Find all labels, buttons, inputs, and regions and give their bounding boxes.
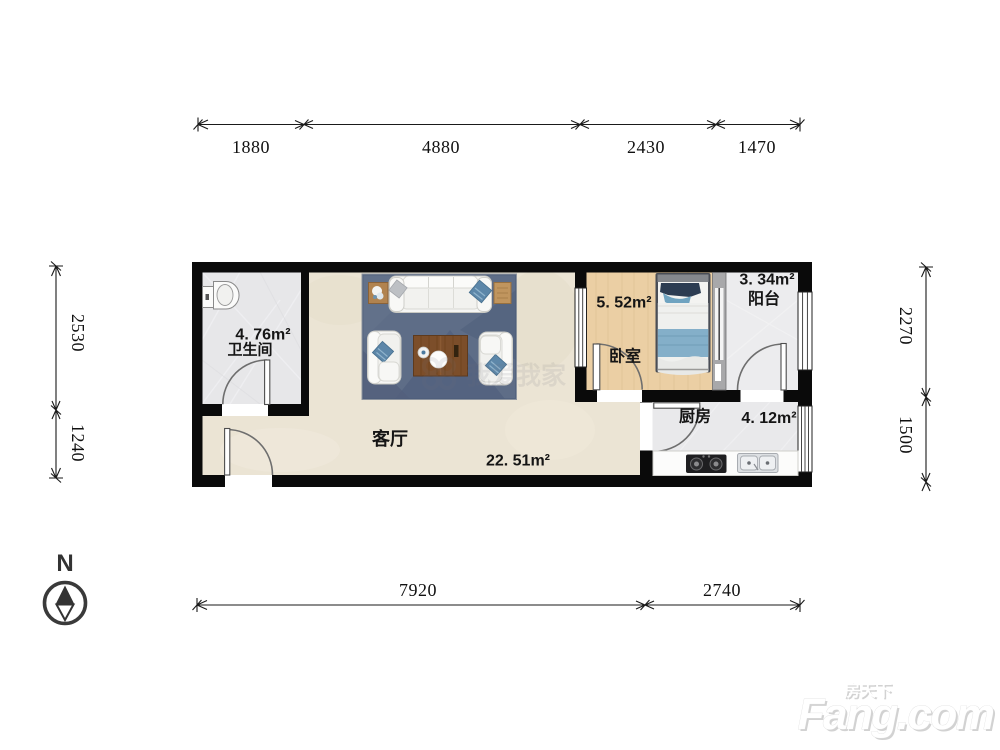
svg-text:2430: 2430: [627, 137, 665, 157]
svg-text:2530: 2530: [68, 314, 88, 352]
svg-text:1470: 1470: [738, 137, 776, 157]
svg-text:我爱我家: 我爱我家: [466, 361, 566, 390]
svg-text:1880: 1880: [232, 137, 270, 157]
svg-text:1240: 1240: [68, 424, 88, 462]
svg-text:卧室: 卧室: [609, 347, 641, 366]
svg-text:客厅: 客厅: [372, 428, 408, 449]
svg-text:4. 12m²: 4. 12m²: [741, 410, 796, 427]
svg-text:4880: 4880: [422, 137, 460, 157]
svg-text:厨房: 厨房: [679, 407, 711, 426]
svg-text:卫生间: 卫生间: [227, 341, 272, 359]
svg-text:3. 34m²: 3. 34m²: [739, 272, 794, 289]
svg-text:N: N: [56, 550, 73, 577]
svg-text:2270: 2270: [896, 307, 916, 345]
svg-text:2740: 2740: [703, 580, 741, 600]
svg-text:7920: 7920: [399, 580, 437, 600]
svg-text:22. 51m²: 22. 51m²: [486, 453, 550, 470]
svg-text:Fang.com: Fang.com: [798, 690, 994, 739]
svg-text:5. 52m²: 5. 52m²: [596, 295, 651, 312]
svg-text:阳台: 阳台: [748, 289, 780, 308]
svg-text:1500: 1500: [896, 416, 916, 454]
